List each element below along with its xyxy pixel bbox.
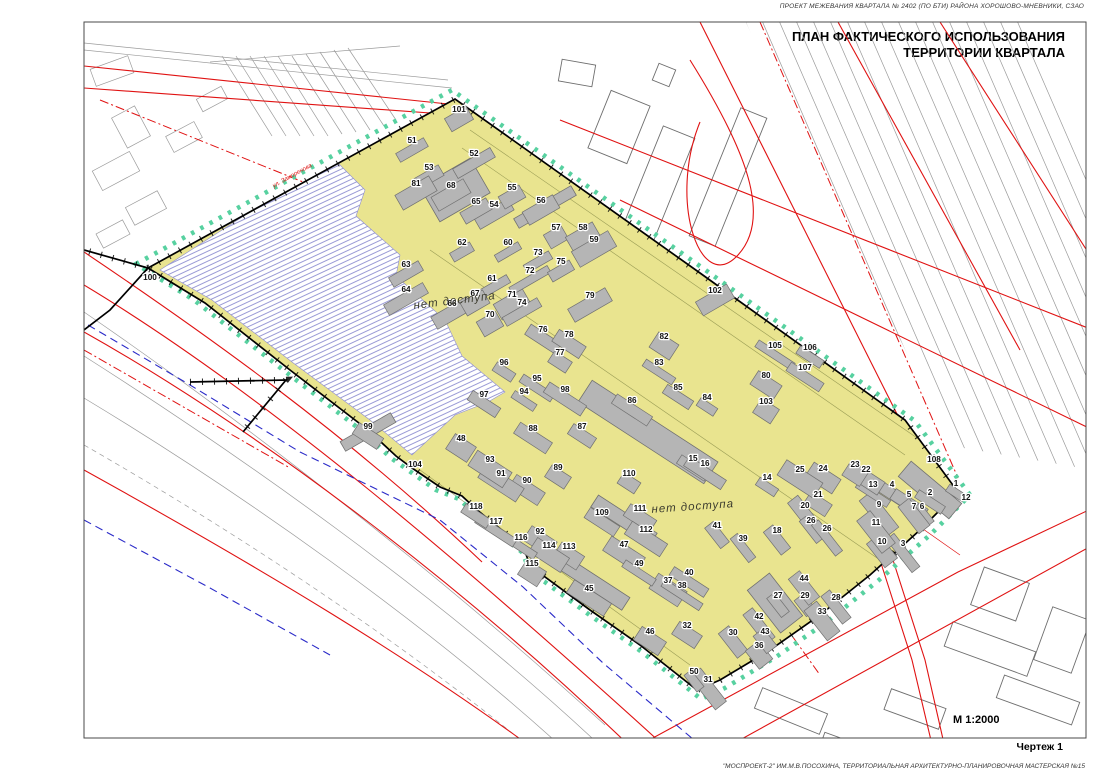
parcel-label: 20 — [800, 501, 810, 510]
parcel-label: 1 — [954, 479, 959, 488]
parcel-label: 87 — [577, 422, 587, 431]
parcel-label: 36 — [754, 641, 764, 650]
parcel-label: 77 — [555, 348, 565, 357]
parcel-label: 24 — [818, 464, 828, 473]
parcel-label: 29 — [800, 591, 810, 600]
parcel-label: 101 — [452, 105, 466, 114]
parcel-label: 99 — [363, 422, 373, 431]
parcel-label: 74 — [517, 298, 527, 307]
parcel-label: 5 — [907, 490, 912, 499]
parcel-label: 100 — [143, 273, 157, 282]
parcel-label: 104 — [408, 460, 422, 469]
parcel-label: 9 — [877, 500, 882, 509]
parcel-label: 64 — [401, 285, 411, 294]
parcel-label: 76 — [538, 325, 548, 334]
parcel-label: 55 — [507, 183, 517, 192]
parcel-label: 112 — [639, 525, 653, 534]
parcel-label: 47 — [619, 540, 629, 549]
parcel-label: 25 — [795, 465, 805, 474]
parcel-label: 109 — [595, 508, 609, 517]
parcel-label: 108 — [927, 455, 941, 464]
parcel-label: 110 — [622, 469, 636, 478]
parcel-label: 89 — [553, 463, 563, 472]
sheet-number: Чертеж 1 — [1016, 741, 1063, 753]
parcel-label: 31 — [703, 675, 713, 684]
parcel-label: 84 — [702, 393, 712, 402]
parcel-label: 85 — [673, 383, 683, 392]
plan-map: 1234567910111213141516182021222324252626… — [0, 0, 1093, 771]
parcel-label: 63 — [401, 260, 411, 269]
parcel-label: 80 — [761, 371, 771, 380]
parcel-label: 88 — [528, 424, 538, 433]
parcel-label: 52 — [469, 149, 479, 158]
parcel-label: 65 — [471, 197, 481, 206]
parcel-label: 118 — [469, 502, 483, 511]
parcel-label: 60 — [503, 238, 513, 247]
parcel-label: 50 — [689, 667, 699, 676]
parcel-label: 78 — [564, 330, 574, 339]
parcel-label: 48 — [456, 434, 466, 443]
parcel-label: 111 — [634, 504, 647, 513]
parcel-label: 30 — [728, 628, 738, 637]
parcel-label: 92 — [535, 527, 545, 536]
parcel-label: 54 — [489, 200, 499, 209]
parcel-label: 44 — [799, 574, 809, 583]
parcel-label: 22 — [861, 465, 871, 474]
parcel-label: 12 — [961, 493, 971, 502]
parcel-label: 2 — [928, 488, 933, 497]
parcel-label: 117 — [489, 517, 503, 526]
parcel-label: 28 — [831, 593, 841, 602]
credit-line: "МОСПРОЕКТ-2" ИМ.М.В.ПОСОХИНА, ТЕРРИТОРИ… — [723, 763, 1085, 770]
parcel-label: 23 — [850, 460, 860, 469]
parcel-label: 37 — [663, 576, 673, 585]
garages-rows — [210, 46, 400, 136]
parcel-label: 39 — [738, 534, 748, 543]
parcel-label: 43 — [760, 627, 770, 636]
parcel-label: 71 — [507, 290, 517, 299]
parcel-label: 97 — [479, 390, 489, 399]
parcel-label: 91 — [496, 469, 506, 478]
parcel-label: 98 — [560, 385, 570, 394]
parcel-label: 27 — [773, 591, 783, 600]
parcel-label: 113 — [562, 542, 576, 551]
parcel-label: 3 — [901, 539, 906, 548]
parcel-label: 42 — [754, 612, 764, 621]
parcel-label: 10 — [877, 537, 887, 546]
parcel-label: 90 — [522, 476, 532, 485]
parcel-label: 26 — [822, 524, 832, 533]
parcel-label: 45 — [584, 584, 594, 593]
parcel-label: 96 — [499, 358, 509, 367]
parcel-label: 75 — [556, 257, 566, 266]
parcel-label: 115 — [525, 559, 539, 568]
parcel-label: 114 — [542, 541, 556, 550]
parcel-label: 40 — [684, 568, 694, 577]
parcel-label: 15 — [688, 454, 698, 463]
parcel-label: 70 — [485, 310, 495, 319]
parcel-label: 6 — [920, 502, 925, 511]
parcel-label: 94 — [519, 387, 529, 396]
scale-label: М 1:2000 — [953, 714, 999, 726]
parcel-label: 62 — [457, 238, 467, 247]
parcel-label: 59 — [589, 235, 599, 244]
parcel-label: 82 — [659, 332, 669, 341]
parcel-label: 93 — [485, 455, 495, 464]
parcel-label: 38 — [677, 581, 687, 590]
parcel-label: 32 — [682, 621, 692, 630]
parcel-label: 26 — [806, 516, 816, 525]
parcel-label: 13 — [868, 480, 878, 489]
parcel-label: 14 — [762, 473, 772, 482]
parcel-label: 68 — [446, 181, 456, 190]
parcel-label: 95 — [532, 374, 542, 383]
parcel-label: 21 — [813, 490, 823, 499]
plan-sheet: ПРОЕКТ МЕЖЕВАНИЯ КВАРТАЛА № 2402 (ПО БТИ… — [0, 0, 1093, 771]
parcel-label: 16 — [700, 459, 710, 468]
parcel-label: 4 — [890, 480, 895, 489]
parcel-label: 41 — [712, 521, 722, 530]
parcel-label: 106 — [803, 343, 817, 352]
parcel-label: 33 — [817, 607, 827, 616]
parcel-label: 83 — [654, 358, 664, 367]
parcel-label: 103 — [759, 397, 773, 406]
parcel-label: 81 — [411, 179, 421, 188]
parcel-label: 18 — [772, 526, 782, 535]
parcel-label: 51 — [407, 136, 417, 145]
parcel-label: 7 — [912, 502, 917, 511]
parcel-label: 58 — [578, 223, 588, 232]
parcel-label: 53 — [424, 163, 434, 172]
parcel-label: 116 — [514, 533, 528, 542]
parcel-label: 107 — [798, 363, 812, 372]
parcel-label: 72 — [525, 266, 535, 275]
parcel-label: 46 — [645, 627, 655, 636]
parcel-label: 56 — [536, 196, 546, 205]
parcel-label: 79 — [585, 291, 595, 300]
context-buildings-topleft — [90, 56, 228, 248]
parcel-label: 57 — [551, 223, 561, 232]
parcel-label: 11 — [872, 518, 881, 527]
parcel-label: 86 — [627, 396, 637, 405]
parcel-label: 105 — [768, 341, 782, 350]
parcel-label: 49 — [634, 559, 644, 568]
parcel-label: 102 — [708, 286, 722, 295]
parcel-label: 61 — [487, 274, 497, 283]
parcel-label: 73 — [533, 248, 543, 257]
